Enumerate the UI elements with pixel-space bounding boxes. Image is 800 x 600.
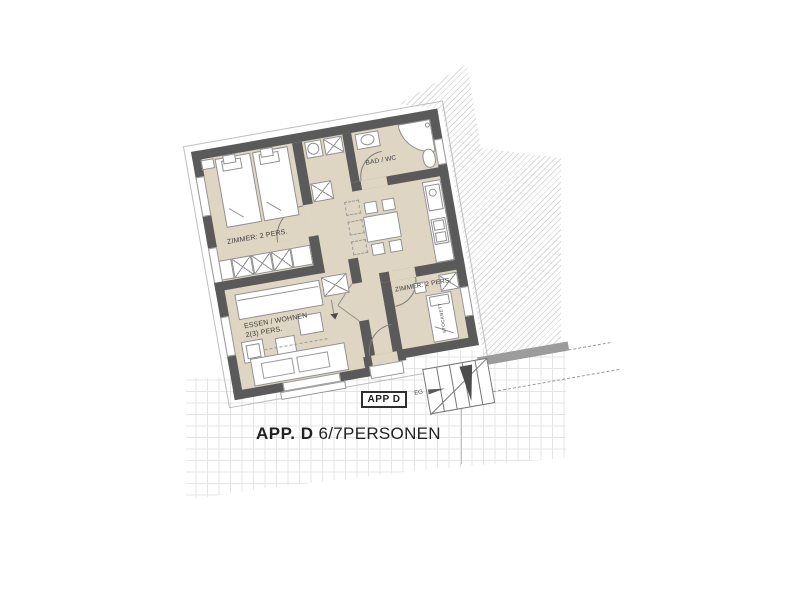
dashed-cabinet-1 [344, 200, 361, 216]
plan-title-bold: APP. D [256, 424, 314, 443]
chair-bottom-1 [371, 242, 386, 256]
plan-title: APP. D 6/7PERSONEN [256, 424, 441, 444]
plan-title-regular: 6/7PERSONEN [314, 424, 441, 443]
dashed-cabinet-2 [348, 219, 365, 235]
chair-bottom-2 [388, 239, 403, 253]
chair-top-1 [363, 201, 378, 215]
apartment-marker-box: APP D [361, 391, 407, 408]
hall-cabinet-x-2 [310, 180, 334, 202]
dashed-cabinet-3 [351, 239, 368, 255]
apartment-marker-label: APP D [368, 394, 401, 405]
floorplan-page: ZIMMER: 2 PERS. BAD / WC STO [0, 0, 800, 600]
stove-plate-2 [435, 231, 448, 243]
terrace-edge-line [461, 404, 462, 464]
wardrobe-end-right [290, 245, 313, 268]
chair-top-2 [381, 197, 396, 211]
hall-cabinet-x [323, 136, 345, 156]
stove-plate-1 [433, 219, 446, 231]
